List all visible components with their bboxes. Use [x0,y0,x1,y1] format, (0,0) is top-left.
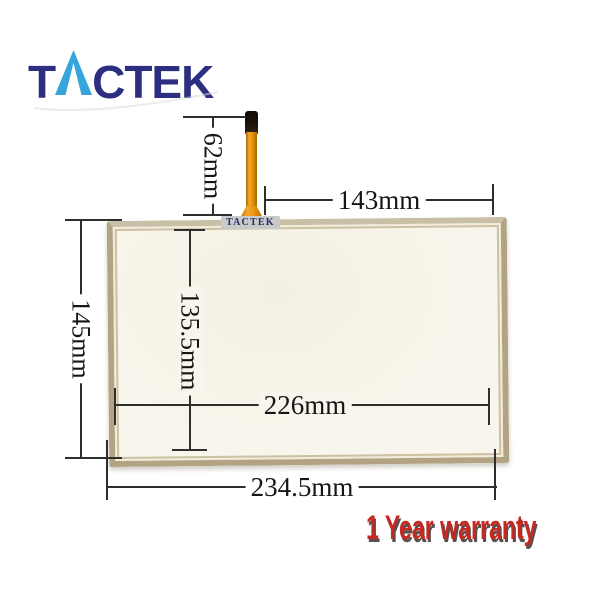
dimension-tick [183,214,232,216]
dim-label-inner-width: 226mm [259,391,352,419]
dimension-tick [65,457,122,459]
dim-label-inner-height: 135.5mm [176,287,203,396]
warranty-text: 1 Year warranty [366,511,537,545]
cable-connector-tip [245,111,258,134]
dim-label-cable-length: 62mm [199,128,226,204]
touch-panel [107,217,510,467]
dimension-tick [174,229,205,231]
dimension-tick [114,388,116,425]
dimension-tick [183,116,246,118]
dimension-tick [264,186,266,215]
dimension-tick [65,219,122,221]
dimension-tick [106,440,108,500]
flex-cable [246,132,257,208]
dim-label-top-width: 143mm [333,186,426,214]
product-image: T CTEK TACTEK 62mm 143mm 145mm 135.5mm 2… [0,0,600,600]
dim-label-bottom-width: 234.5mm [246,473,359,501]
dimension-tick [494,449,496,500]
dimension-tick [172,449,207,451]
panel-watermark: TACTEK [221,216,280,229]
dim-label-left-height: 145mm [67,294,94,383]
logo-swoosh-icon [30,86,225,114]
dimension-tick [492,184,494,215]
dimension-tick [488,388,490,425]
